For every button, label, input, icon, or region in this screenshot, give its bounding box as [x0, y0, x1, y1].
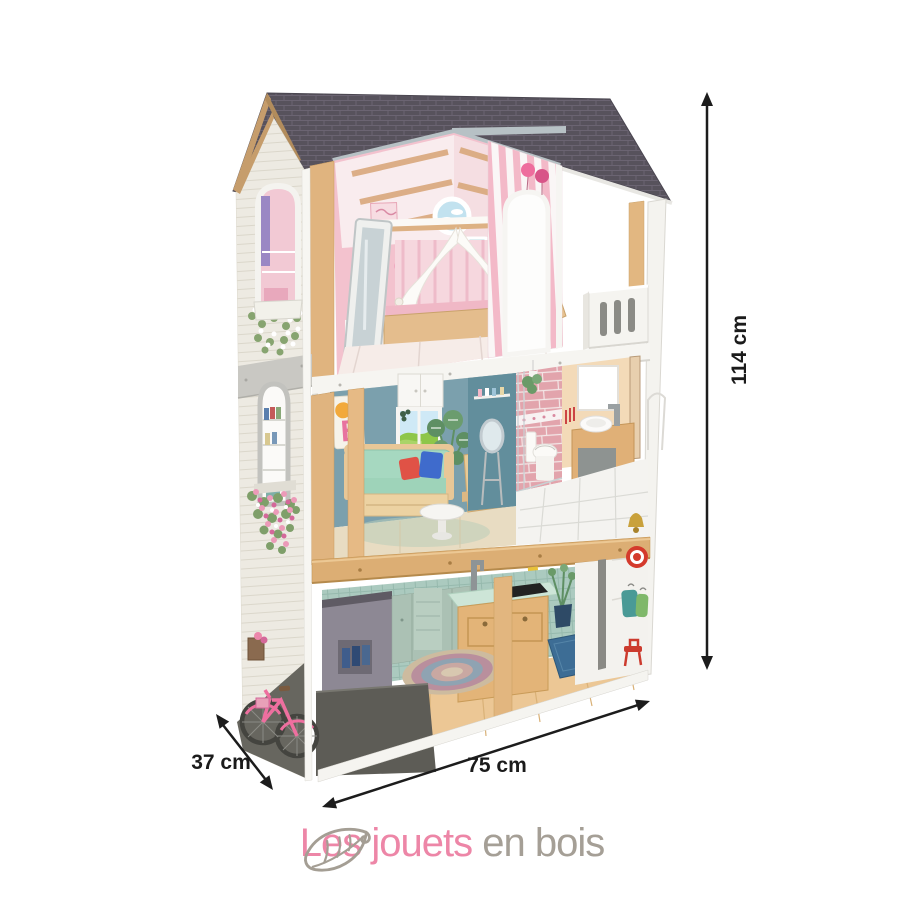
attic-arch-doorway	[505, 192, 548, 355]
interior-post	[348, 388, 364, 565]
tower-side	[235, 112, 317, 781]
balloon-decal	[521, 163, 535, 177]
bathroom	[516, 356, 648, 545]
gray-cabinets	[322, 591, 392, 700]
width-dimension-label: 75 cm	[467, 754, 527, 778]
bathroom-window	[578, 366, 618, 410]
porch-post	[629, 201, 644, 290]
red-pillow	[398, 456, 421, 480]
product-screenshot: B	[0, 0, 900, 900]
balcony	[583, 286, 648, 350]
red-roundel-decal	[626, 546, 648, 568]
brand-logo: Les jouets en bois	[300, 823, 604, 863]
dollhouse-product-photo: B	[0, 0, 900, 900]
height-dimension-label: 114 cm	[728, 315, 752, 385]
wall-cupboard	[398, 374, 443, 407]
height-arrow	[701, 92, 713, 670]
corner-post	[310, 392, 334, 565]
striped-wall	[488, 141, 562, 358]
kitchen	[316, 556, 648, 782]
blue-pillow	[419, 451, 444, 479]
corner-post	[310, 161, 334, 384]
oval-mirror	[481, 420, 503, 452]
entry-area	[575, 556, 648, 685]
tower-arch-window	[258, 186, 298, 310]
brand-name-secondary: en bois	[482, 821, 604, 865]
partition-wall	[468, 373, 516, 511]
center-post	[494, 576, 512, 720]
leaf-icon	[300, 823, 372, 879]
depth-dimension-label: 37 cm	[191, 751, 251, 775]
